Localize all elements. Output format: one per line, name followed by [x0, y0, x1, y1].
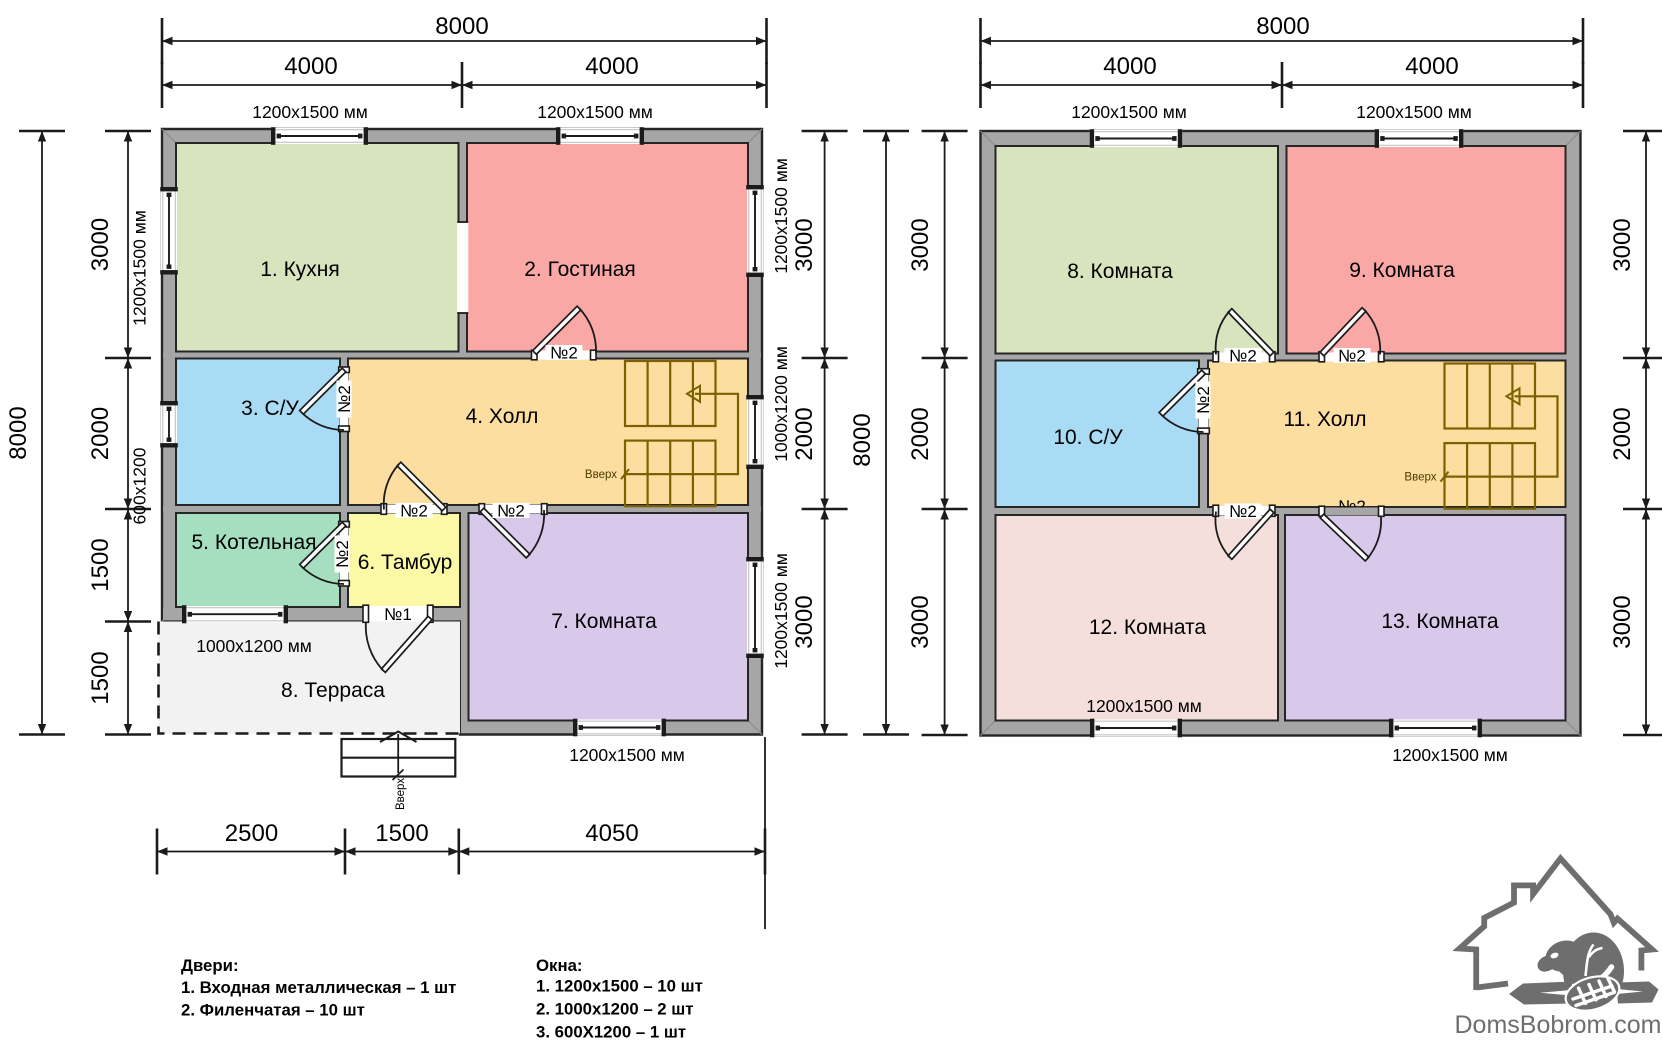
svg-text:1000х1200 мм: 1000х1200 мм: [771, 346, 791, 462]
svg-text:№2: №2: [335, 385, 354, 413]
svg-text:3000: 3000: [791, 218, 818, 271]
svg-text:№2: №2: [1229, 502, 1257, 521]
svg-text:8. Терраса: 8. Терраса: [281, 679, 385, 702]
svg-text:DomsBobrom.com: DomsBobrom.com: [1455, 1011, 1662, 1039]
svg-text:2000: 2000: [87, 407, 114, 460]
svg-text:№2: №2: [1194, 386, 1213, 414]
svg-text:2000: 2000: [1609, 407, 1636, 460]
svg-text:№2: №2: [400, 502, 428, 521]
svg-text:4000: 4000: [1103, 53, 1156, 80]
svg-text:1200х1500 мм: 1200х1500 мм: [1086, 696, 1202, 716]
svg-text:Вверх: Вверх: [585, 469, 617, 481]
svg-text:Окна:: Окна:: [536, 956, 583, 975]
svg-text:№2: №2: [550, 344, 578, 363]
svg-text:9. Комната: 9. Комната: [1349, 259, 1455, 282]
svg-text:1200х1500 мм: 1200х1500 мм: [771, 553, 791, 669]
svg-text:10. С/У: 10. С/У: [1053, 426, 1123, 449]
svg-text:5. Котельная: 5. Котельная: [191, 531, 316, 554]
svg-text:8000: 8000: [5, 406, 32, 459]
svg-text:№2: №2: [1229, 347, 1257, 366]
svg-text:3. 600Х1200 – 1 шт: 3. 600Х1200 – 1 шт: [536, 1023, 686, 1042]
svg-text:2. Филенчатая – 10 шт: 2. Филенчатая – 10 шт: [181, 1001, 365, 1020]
svg-text:Двери:: Двери:: [181, 956, 239, 975]
svg-text:7. Комната: 7. Комната: [551, 610, 657, 633]
svg-text:13. Комната: 13. Комната: [1381, 610, 1499, 633]
svg-text:4000: 4000: [1405, 53, 1458, 80]
svg-text:3000: 3000: [791, 595, 818, 648]
svg-text:4050: 4050: [585, 820, 638, 847]
svg-text:2. Гостиная: 2. Гостиная: [524, 258, 636, 281]
svg-text:1200х1500 мм: 1200х1500 мм: [130, 210, 150, 326]
svg-text:1500: 1500: [87, 651, 114, 704]
svg-text:2000: 2000: [907, 407, 934, 460]
svg-text:Вверх: Вверх: [395, 778, 407, 810]
svg-text:1. 1200х1500 – 10 шт: 1. 1200х1500 – 10 шт: [536, 977, 703, 996]
svg-text:4. Холл: 4. Холл: [466, 405, 539, 428]
svg-text:8. Комната: 8. Комната: [1067, 260, 1173, 283]
svg-text:1200х1500 мм: 1200х1500 мм: [252, 102, 368, 122]
svg-text:№2: №2: [333, 540, 352, 568]
svg-text:2000: 2000: [791, 407, 818, 460]
svg-text:1500: 1500: [375, 820, 428, 847]
svg-text:3000: 3000: [1609, 595, 1636, 648]
svg-text:1200х1500 мм: 1200х1500 мм: [1071, 102, 1187, 122]
svg-text:6. Тамбур: 6. Тамбур: [358, 551, 453, 574]
svg-text:3000: 3000: [907, 595, 934, 648]
svg-text:4000: 4000: [585, 53, 638, 80]
svg-text:3. С/У: 3. С/У: [241, 397, 299, 420]
svg-text:2. 1000х1200 – 2 шт: 2. 1000х1200 – 2 шт: [536, 1000, 694, 1019]
svg-text:4000: 4000: [284, 53, 337, 80]
svg-text:12. Комната: 12. Комната: [1089, 616, 1207, 639]
svg-text:8000: 8000: [1256, 13, 1309, 40]
svg-text:1200х1500 мм: 1200х1500 мм: [537, 102, 653, 122]
svg-text:2500: 2500: [225, 820, 278, 847]
svg-text:3000: 3000: [87, 218, 114, 271]
svg-text:1. Кухня: 1. Кухня: [260, 258, 340, 281]
svg-text:1. Входная металлическая – 1 ш: 1. Входная металлическая – 1 шт: [181, 978, 456, 997]
svg-text:№1: №1: [384, 605, 412, 624]
svg-text:8000: 8000: [435, 13, 488, 40]
svg-text:3000: 3000: [1609, 218, 1636, 271]
svg-text:№2: №2: [497, 502, 525, 521]
svg-text:Вверх: Вверх: [1404, 472, 1436, 484]
svg-text:1200х1500 мм: 1200х1500 мм: [771, 158, 791, 274]
svg-text:1200х1500 мм: 1200х1500 мм: [569, 745, 685, 765]
svg-text:11. Холл: 11. Холл: [1284, 408, 1367, 431]
svg-text:8000: 8000: [849, 413, 876, 466]
svg-text:3000: 3000: [907, 218, 934, 271]
svg-text:1500: 1500: [87, 538, 114, 591]
svg-text:1000х1200 мм: 1000х1200 мм: [196, 636, 312, 656]
svg-text:№2: №2: [1338, 347, 1366, 366]
svg-text:600х1200: 600х1200: [130, 447, 150, 524]
svg-text:1200х1500 мм: 1200х1500 мм: [1392, 745, 1508, 765]
svg-text:1200х1500 мм: 1200х1500 мм: [1356, 102, 1472, 122]
